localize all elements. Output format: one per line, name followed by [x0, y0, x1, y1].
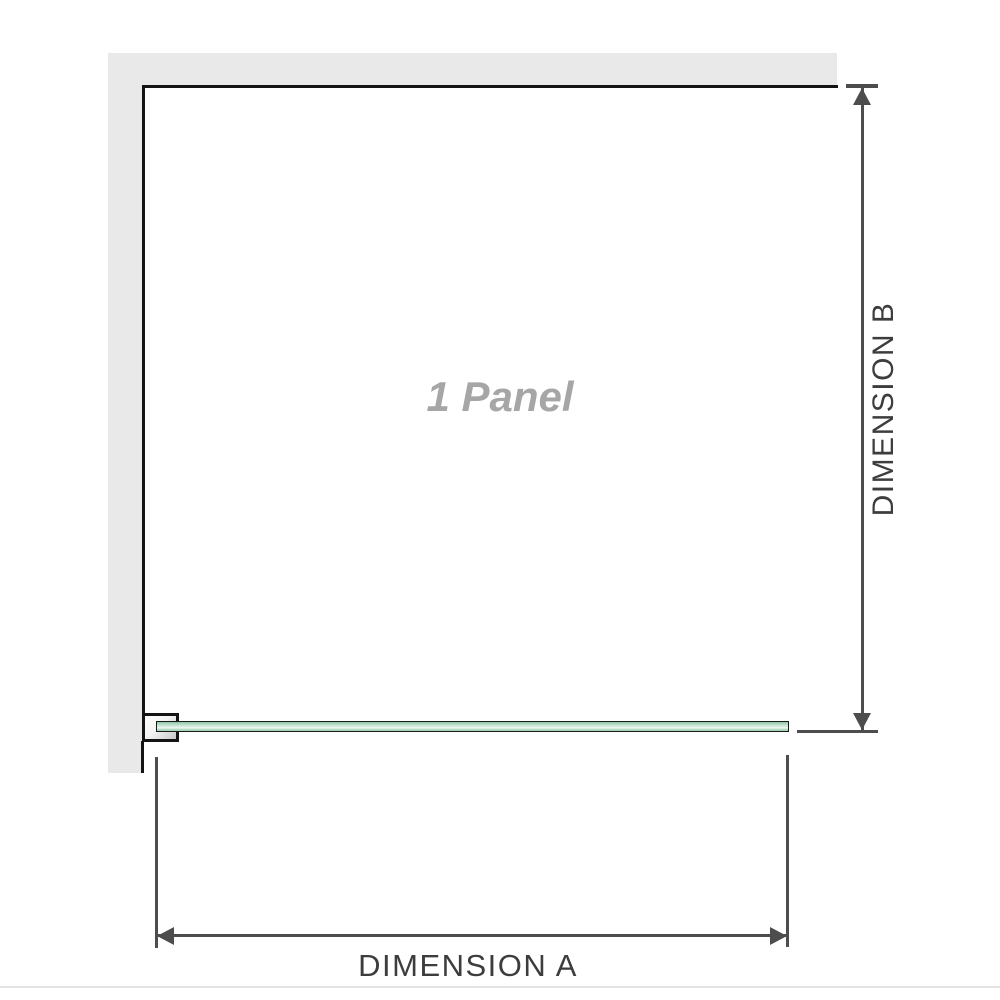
dimension-a-extension-right: [786, 755, 789, 947]
dimension-b-cap-top: [846, 84, 878, 88]
bottom-divider-line: [0, 986, 1000, 988]
enclosure-border-left: [142, 85, 145, 713]
panel-count-label: 1 Panel: [426, 373, 573, 421]
enclosure-border-top: [142, 85, 838, 88]
panel-dimension-diagram: 1 Panel DIMENSION B DIMENSION A: [0, 0, 1000, 1000]
wall-edge-below-clamp: [141, 741, 144, 773]
dimension-a-arrow-right-icon: [770, 927, 787, 945]
dimension-b-cap-bottom: [797, 730, 878, 734]
wall-top: [108, 53, 837, 85]
dimension-a-arrow-left-icon: [157, 927, 174, 945]
dimension-a-label: DIMENSION A: [358, 948, 578, 984]
glass-panel-bar: [156, 721, 789, 732]
dimension-b-arrow-down-icon: [853, 713, 871, 730]
dimension-b-line: [861, 88, 864, 730]
wall-left: [108, 53, 142, 773]
dimension-a-line: [158, 934, 787, 937]
dimension-b-label: DIMENSION B: [867, 302, 901, 517]
dimension-a-extension-left: [155, 757, 158, 948]
dimension-b-arrow-up-icon: [853, 88, 871, 105]
